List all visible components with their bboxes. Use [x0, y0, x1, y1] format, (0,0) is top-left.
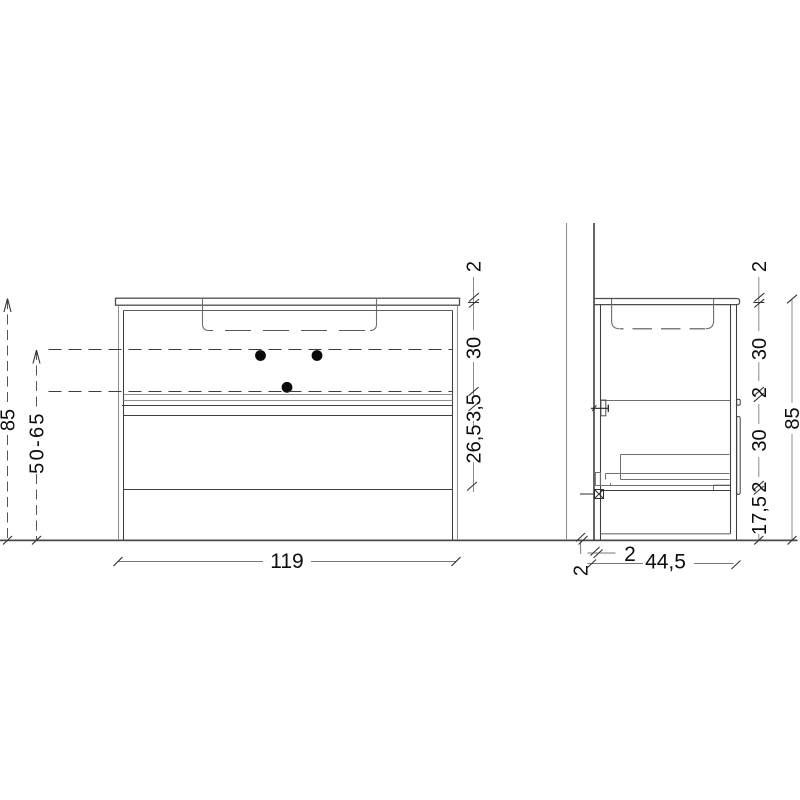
- svg-text:26,5: 26,5: [464, 425, 486, 464]
- svg-text:2: 2: [749, 481, 771, 492]
- svg-text:50-65: 50-65: [27, 411, 49, 474]
- svg-text:2: 2: [624, 543, 636, 566]
- svg-text:2: 2: [749, 387, 771, 398]
- svg-text:2: 2: [749, 261, 771, 272]
- svg-text:30: 30: [464, 337, 486, 359]
- svg-text:119: 119: [270, 550, 303, 573]
- svg-text:30: 30: [749, 429, 771, 451]
- svg-text:3,5: 3,5: [464, 394, 486, 422]
- svg-text:17,5: 17,5: [749, 496, 771, 535]
- svg-text:85: 85: [0, 409, 20, 431]
- svg-text:44,5: 44,5: [645, 551, 686, 574]
- svg-text:85: 85: [782, 407, 800, 429]
- svg-text:2: 2: [464, 261, 486, 272]
- svg-text:30: 30: [749, 338, 771, 360]
